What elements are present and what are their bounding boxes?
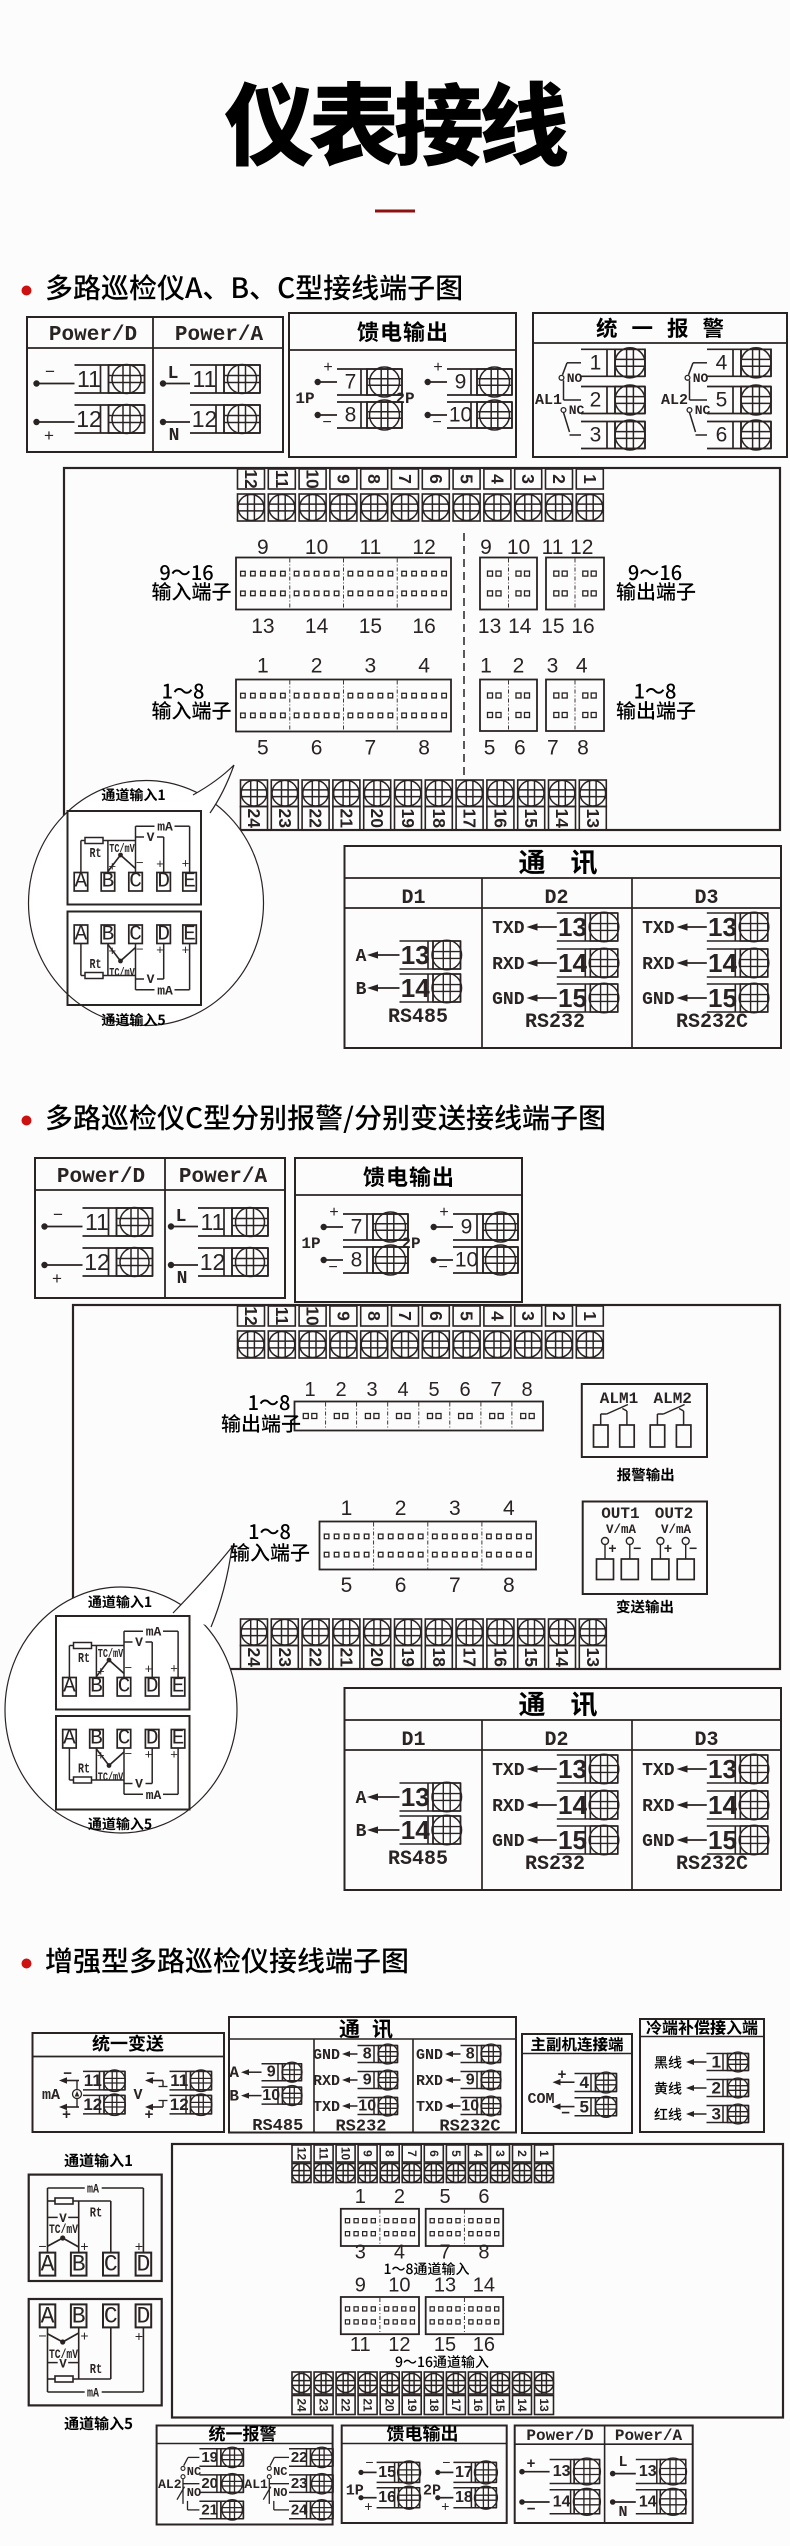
svg-text:15: 15 [541,615,564,638]
svg-text:12: 12 [76,406,102,432]
svg-text:8: 8 [577,737,589,760]
svg-text:E: E [172,1676,185,1699]
svg-text:15: 15 [378,2464,396,2481]
svg-text:1: 1 [580,1311,600,1321]
svg-text:12: 12 [570,536,593,559]
svg-text:−: − [365,2456,373,2472]
svg-text:Rt: Rt [90,2206,103,2222]
svg-text:2: 2 [549,1311,569,1321]
svg-text:TXD: TXD [642,919,675,939]
svg-text:13: 13 [434,2275,456,2297]
svg-text:10: 10 [455,1249,478,1272]
svg-text:mA: mA [146,1625,162,1640]
svg-text:9: 9 [466,2072,475,2089]
svg-text:+: + [97,1665,105,1680]
svg-text:13: 13 [708,1754,737,1784]
svg-text:B: B [72,2303,86,2329]
svg-text:A: A [75,871,88,894]
svg-text:11: 11 [317,2147,331,2160]
svg-text:2: 2 [513,655,525,678]
svg-text:A: A [41,2303,55,2329]
svg-text:12: 12 [388,2334,410,2356]
svg-text:16: 16 [378,2489,396,2506]
svg-text:4: 4 [487,1311,507,1321]
svg-text:C: C [129,871,142,894]
svg-text:+: + [97,1749,105,1764]
svg-text:+: + [182,943,190,958]
svg-text:12: 12 [241,469,261,489]
svg-text:1P: 1P [295,390,314,408]
svg-text:RS232: RS232 [525,1011,585,1034]
svg-text:15: 15 [558,1825,587,1855]
svg-text:10: 10 [303,469,323,489]
svg-text:9: 9 [361,2150,375,2157]
svg-text:N: N [618,2504,627,2521]
svg-text:TC/mV: TC/mV [49,2347,78,2362]
svg-text:15: 15 [521,808,541,828]
svg-text:B: B [90,1728,103,1751]
svg-text:23: 23 [291,2475,308,2492]
svg-text:TC/mV: TC/mV [109,842,135,856]
svg-text:17: 17 [460,808,480,827]
svg-text:Power/D: Power/D [526,2427,593,2445]
svg-text:N: N [169,426,180,446]
svg-text:12: 12 [295,2147,309,2161]
svg-text:12: 12 [192,406,218,432]
svg-text:9: 9 [333,1311,353,1321]
svg-text:−: − [53,1207,63,1226]
svg-text:−: − [124,1747,132,1762]
svg-text:5: 5 [257,737,269,760]
svg-text:+: + [170,1662,178,1677]
svg-text:V/mA: V/mA [661,1523,692,1537]
svg-text:1: 1 [537,2150,551,2157]
svg-text:5: 5 [439,2186,450,2208]
svg-text:6: 6 [427,2150,441,2157]
svg-text:V: V [135,1635,143,1650]
svg-text:15: 15 [359,615,382,638]
svg-text:2: 2 [515,2150,529,2157]
svg-text:1: 1 [590,351,602,374]
svg-text:11: 11 [272,470,292,489]
svg-text:10: 10 [303,1306,323,1326]
svg-text:+: + [664,1542,672,1558]
svg-text:RXD: RXD [416,2073,443,2090]
svg-text:V: V [147,972,155,987]
svg-text:A: A [75,923,88,946]
svg-text:Rt: Rt [78,1652,90,1667]
svg-text:5: 5 [484,737,496,760]
svg-text:13: 13 [583,1647,603,1667]
svg-text:+: + [144,2107,153,2124]
svg-text:+: + [156,857,164,872]
svg-text:1: 1 [480,655,492,678]
svg-text:5: 5 [716,389,728,412]
svg-text:RS232C: RS232C [439,2118,500,2137]
svg-text:10: 10 [507,536,530,559]
svg-text:4: 4 [394,2242,405,2264]
svg-text:13: 13 [583,808,603,828]
svg-text:2: 2 [395,1497,407,1520]
svg-text:mA: mA [42,2087,60,2104]
svg-text:RXD: RXD [492,1797,525,1817]
svg-text:+: + [52,1271,62,1290]
svg-text:14: 14 [708,1790,737,1820]
svg-text:AL1: AL1 [244,2477,268,2492]
svg-text:7: 7 [405,2150,419,2157]
svg-text:1: 1 [341,1497,353,1520]
svg-text:D: D [146,1676,159,1699]
svg-text:L: L [618,2454,627,2471]
svg-text:7: 7 [439,2242,450,2264]
svg-text:20: 20 [201,2475,218,2492]
svg-text:13: 13 [558,1754,587,1784]
svg-text:18: 18 [427,2398,441,2412]
svg-text:21: 21 [336,1647,356,1667]
svg-text:7: 7 [449,1574,461,1597]
svg-text:1: 1 [711,2053,720,2072]
svg-text:16: 16 [412,615,435,638]
svg-text:mA: mA [87,2386,99,2400]
svg-text:C: C [104,2303,118,2329]
svg-text:ALM2: ALM2 [653,1390,691,1408]
svg-text:TXD: TXD [492,1761,525,1781]
svg-text:9: 9 [257,536,269,559]
svg-text:+: + [364,2500,372,2516]
svg-text:+: + [608,1542,616,1558]
svg-text:16: 16 [471,2398,485,2412]
svg-text:RXD: RXD [642,1797,675,1817]
svg-text:13: 13 [537,2398,551,2412]
svg-text:11: 11 [170,2071,188,2090]
svg-text:14: 14 [639,2493,657,2510]
svg-text:13: 13 [401,1782,430,1812]
svg-text:C: C [104,2252,118,2278]
svg-text:NC: NC [569,403,585,418]
svg-text:−: − [38,2240,46,2256]
svg-text:10: 10 [262,2087,280,2104]
svg-text:COM: COM [527,2091,554,2108]
svg-text:8: 8 [351,1249,363,1272]
svg-text:+: + [439,1204,449,1222]
svg-text:7: 7 [395,474,415,484]
svg-text:8: 8 [364,1311,384,1321]
svg-text:D3: D3 [694,1729,718,1752]
svg-text:10: 10 [305,536,328,559]
svg-text:−: − [438,1259,448,1277]
svg-text:8: 8 [521,1379,532,1401]
svg-text:−: − [442,2456,450,2472]
svg-text:22: 22 [339,2398,353,2412]
svg-text:14: 14 [552,1647,572,1667]
svg-text:A: A [63,1676,76,1699]
svg-text:L: L [168,364,179,384]
svg-text:1P: 1P [301,1235,320,1253]
svg-text:+: + [526,2456,535,2473]
svg-text:8: 8 [364,474,384,484]
svg-text:Rt: Rt [90,847,102,862]
svg-text:11: 11 [77,366,101,392]
svg-text:3: 3 [711,2105,720,2124]
svg-text:TXD: TXD [313,2099,340,2116]
svg-text:D: D [157,871,170,894]
svg-text:OUT2: OUT2 [655,1505,693,1523]
svg-text:A: A [356,1789,367,1809]
svg-text:−: − [146,2066,155,2083]
svg-text:6: 6 [426,1311,446,1321]
svg-text:12: 12 [200,1249,226,1275]
svg-text:7: 7 [365,737,377,760]
svg-text:NC: NC [273,2465,287,2479]
svg-text:5: 5 [579,2097,588,2116]
svg-text:D1: D1 [401,887,425,910]
svg-text:L: L [176,1207,187,1227]
svg-text:15: 15 [493,2398,507,2412]
svg-text:9: 9 [461,1216,473,1239]
svg-text:18: 18 [455,2489,473,2506]
svg-text:11: 11 [272,1307,292,1326]
svg-text:3: 3 [493,2150,507,2157]
svg-text:RS485: RS485 [388,1006,448,1029]
svg-text:14: 14 [552,808,572,828]
svg-text:+: + [135,2240,143,2256]
svg-text:B: B [229,2088,239,2106]
svg-text:V: V [135,1777,143,1792]
svg-text:Rt: Rt [90,958,102,973]
svg-text:10: 10 [388,2275,410,2297]
svg-text:A: A [63,1728,76,1751]
svg-text:9: 9 [267,2064,276,2081]
svg-text:−: − [124,1661,132,1676]
svg-text:6: 6 [459,1379,470,1401]
svg-text:11: 11 [85,1209,109,1235]
svg-text:2P: 2P [395,390,414,408]
svg-text:RXD: RXD [642,955,675,975]
svg-text:20: 20 [367,1647,387,1667]
svg-text:9: 9 [333,474,353,484]
svg-text:14: 14 [508,615,532,638]
svg-text:+: + [62,2107,71,2124]
svg-text:Power/D: Power/D [49,324,137,347]
svg-text:2: 2 [394,2186,405,2208]
svg-text:−: − [561,2106,570,2123]
svg-text:8: 8 [503,1574,515,1597]
svg-text:NC: NC [187,2465,201,2479]
svg-text:−: − [526,2502,535,2519]
svg-text:D3: D3 [694,887,718,910]
svg-text:+: + [441,2500,449,2516]
svg-text:GND: GND [416,2047,443,2064]
svg-text:18: 18 [429,1647,449,1667]
svg-text:B: B [356,980,367,1000]
svg-text:3: 3 [366,1379,377,1401]
svg-text:+: + [108,860,116,875]
svg-text:19: 19 [398,808,418,828]
svg-text:14: 14 [553,2493,571,2510]
svg-text:13: 13 [251,615,274,638]
svg-text:4: 4 [576,655,588,678]
svg-text:24: 24 [291,2501,308,2518]
svg-text:8: 8 [345,404,357,427]
svg-text:14: 14 [473,2275,495,2297]
svg-text:Power/A: Power/A [175,324,264,347]
svg-text:15: 15 [708,983,737,1013]
svg-text:N: N [177,1269,188,1289]
svg-text:TC/mV: TC/mV [98,1771,124,1785]
svg-text:13: 13 [708,912,737,942]
svg-text:6: 6 [426,474,446,484]
svg-text:TXD: TXD [642,1761,675,1781]
svg-text:−: − [633,1542,641,1558]
svg-text:3: 3 [518,474,538,484]
svg-text:V: V [147,830,155,845]
svg-text:15: 15 [558,983,587,1013]
svg-text:10: 10 [461,2098,479,2115]
svg-text:5: 5 [449,2150,463,2157]
svg-text:RS232C: RS232C [676,1011,748,1034]
svg-text:−: − [432,414,442,432]
svg-text:V: V [133,2087,142,2104]
svg-text:mA: mA [87,2182,99,2196]
svg-text:RS485: RS485 [388,1848,448,1871]
svg-text:RXD: RXD [492,955,525,975]
svg-text:6: 6 [311,737,323,760]
svg-text:3: 3 [355,2242,366,2264]
svg-text:24: 24 [295,2398,309,2412]
svg-text:11: 11 [201,1209,225,1235]
svg-text:13: 13 [558,912,587,942]
svg-text:17: 17 [460,1647,480,1666]
svg-text:14: 14 [401,973,430,1003]
svg-text:6: 6 [395,1574,407,1597]
svg-text:−: − [328,1259,338,1277]
svg-text:17: 17 [455,2464,473,2481]
svg-text:GND: GND [313,2047,340,2064]
svg-text:V/mA: V/mA [606,1523,637,1537]
svg-text:TC/mV: TC/mV [98,1647,124,1661]
svg-text:12: 12 [84,1249,110,1275]
svg-text:AL2: AL2 [158,2477,182,2492]
svg-text:20: 20 [367,808,387,828]
svg-text:−: − [45,364,55,383]
svg-text:+: + [170,1748,178,1763]
svg-text:16: 16 [490,808,510,828]
svg-text:8: 8 [466,2046,475,2063]
svg-text:16: 16 [490,1647,510,1667]
svg-text:19: 19 [201,2449,218,2466]
svg-text:14: 14 [305,615,329,638]
svg-text:3: 3 [449,1497,461,1520]
svg-text:23: 23 [317,2398,331,2412]
svg-text:4: 4 [397,1379,408,1401]
svg-text:+: + [80,2240,88,2256]
svg-text:D: D [136,2303,150,2329]
svg-text:Rt: Rt [78,1763,90,1778]
svg-text:RS485: RS485 [252,2117,303,2136]
svg-text:9: 9 [363,2072,372,2089]
svg-text:RS232: RS232 [525,1853,585,1876]
svg-text:14: 14 [708,948,737,978]
svg-text:21: 21 [201,2501,218,2518]
svg-text:8: 8 [383,2150,397,2157]
svg-text:AL2: AL2 [661,392,688,409]
svg-text:12: 12 [412,536,435,559]
svg-text:6: 6 [478,2186,489,2208]
svg-text:mA: mA [157,820,173,835]
svg-text:−: − [63,2066,72,2083]
svg-text:8: 8 [478,2242,489,2264]
svg-text:2: 2 [590,389,602,412]
svg-text:3: 3 [518,1311,538,1321]
svg-text:A: A [356,947,367,967]
svg-text:9: 9 [355,2275,366,2297]
svg-text:7: 7 [351,1216,363,1239]
svg-text:−: − [136,943,144,958]
svg-text:4: 4 [716,351,728,374]
svg-text:+: + [182,857,190,872]
svg-text:1: 1 [304,1379,315,1401]
svg-text:20: 20 [383,2398,397,2412]
svg-text:11: 11 [359,536,381,559]
svg-text:11: 11 [350,2334,371,2356]
svg-text:Power/D: Power/D [57,1166,145,1189]
svg-text:2: 2 [711,2079,720,2098]
svg-text:13: 13 [478,615,501,638]
svg-text:3: 3 [365,655,377,678]
svg-text:13: 13 [401,940,430,970]
svg-text:4: 4 [487,474,507,484]
svg-text:19: 19 [398,1647,418,1667]
svg-text:−: − [136,856,144,871]
svg-text:Power/A: Power/A [179,1166,268,1189]
svg-text:16: 16 [571,615,594,638]
svg-text:8: 8 [418,737,430,760]
svg-text:D1: D1 [401,1729,425,1752]
svg-text:+: + [80,2330,88,2346]
svg-text:22: 22 [306,1647,326,1667]
svg-text:12: 12 [170,2095,189,2114]
svg-text:14: 14 [558,948,587,978]
svg-text:GND: GND [492,990,525,1010]
svg-text:1: 1 [355,2186,366,2208]
svg-text:B: B [356,1822,367,1842]
svg-text:−: − [322,414,332,432]
svg-text:RXD: RXD [313,2073,340,2090]
svg-text:1: 1 [580,474,600,484]
svg-text:19: 19 [405,2398,419,2412]
svg-text:22: 22 [291,2449,308,2466]
svg-text:4: 4 [503,1497,515,1520]
svg-text:AL1: AL1 [535,392,562,409]
svg-text:4: 4 [579,2073,589,2092]
svg-text:2: 2 [335,1379,346,1401]
svg-text:7: 7 [395,1311,415,1321]
svg-text:6: 6 [716,424,728,447]
svg-text:+: + [108,944,116,959]
svg-text:C: C [118,1676,131,1699]
svg-text:NO: NO [567,371,583,386]
svg-text:+: + [135,2330,143,2346]
svg-text:4: 4 [471,2150,485,2157]
svg-text:3: 3 [590,424,602,447]
svg-text:15: 15 [708,1825,737,1855]
svg-text:RS232C: RS232C [676,1853,748,1876]
svg-text:7: 7 [345,371,357,394]
svg-text:14: 14 [401,1815,430,1845]
svg-text:8: 8 [363,2046,372,2063]
svg-text:NO: NO [693,371,709,386]
svg-text:NO: NO [187,2486,201,2500]
